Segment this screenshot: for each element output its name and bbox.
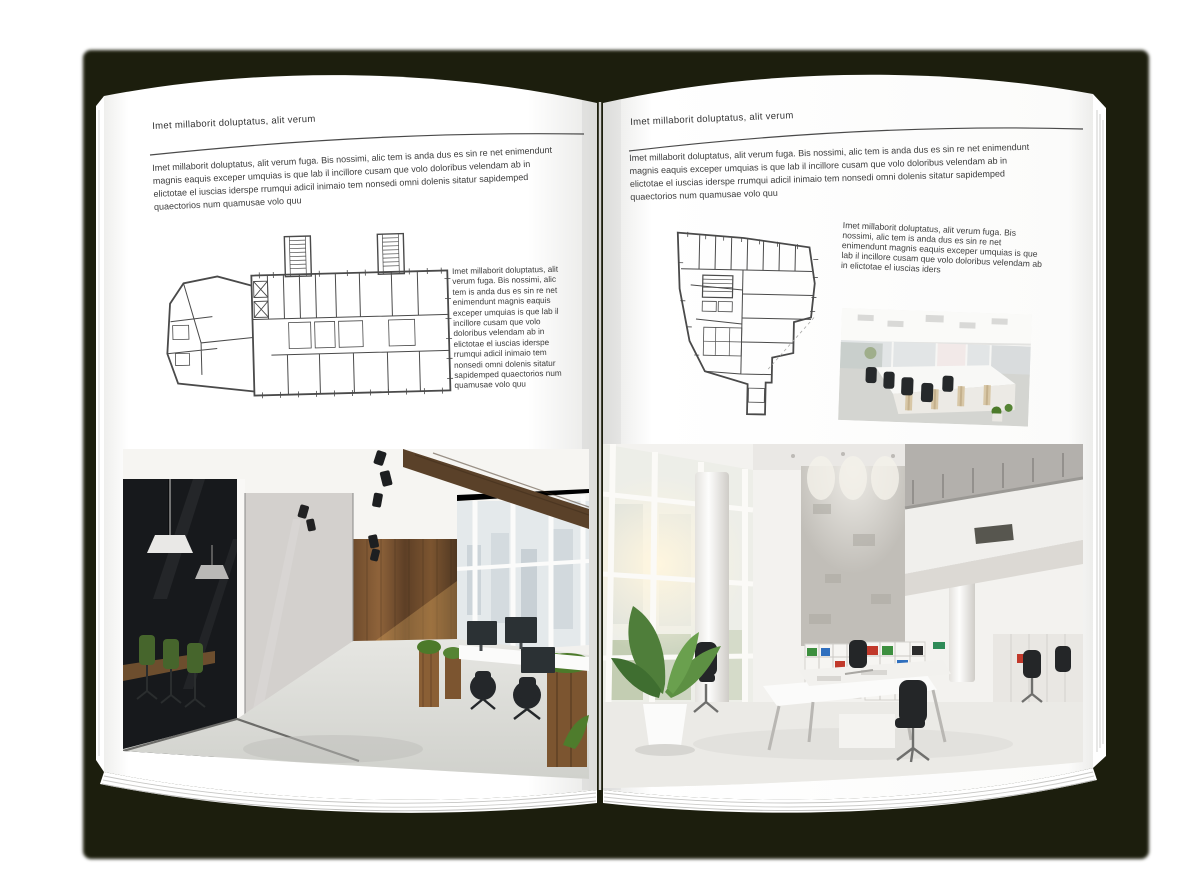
right-page-small-photo-open-office xyxy=(838,308,1032,427)
right-page-side-text: Imet millaborit doluptatus, alit verum f… xyxy=(841,221,1045,280)
page-stack-left-edge xyxy=(96,96,104,772)
wood-wall xyxy=(353,539,457,641)
left-page-side-text: Imet millaborit doluptatus, alit verum f… xyxy=(452,265,571,392)
left-page-photo-wood-office xyxy=(123,449,589,785)
brochure-spread-mockup: Imet millaborit doluptatus, alit verum I… xyxy=(0,0,1200,891)
left-floor-plan-drawing xyxy=(158,218,459,418)
right-floor-plan-drawing xyxy=(644,222,832,426)
page-stack-right-edge xyxy=(1093,94,1106,768)
concrete-wall xyxy=(801,456,905,646)
right-page-photo-atrium-office xyxy=(603,444,1083,788)
glass-meeting-room xyxy=(123,479,241,757)
